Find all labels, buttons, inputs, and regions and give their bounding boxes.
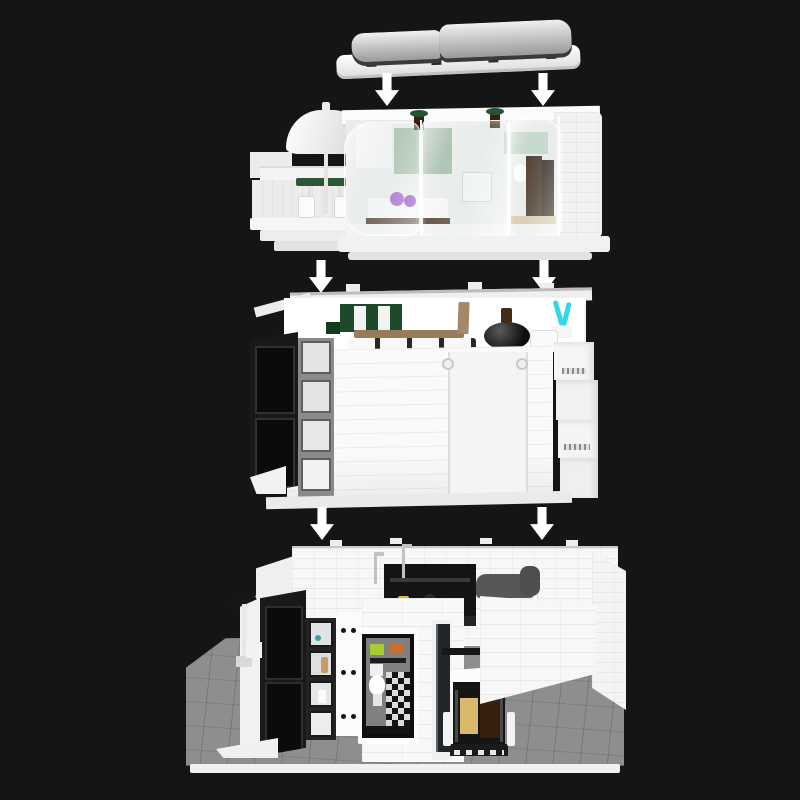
chrome-tap: [402, 548, 405, 578]
middle-recessed-panel: [448, 352, 528, 496]
window-column-gray: [298, 338, 334, 498]
toilet-bowl: [369, 675, 385, 695]
stepped-side-wall: [554, 342, 600, 498]
wardrobe-gold-door: [460, 698, 478, 734]
bathroom-floor-edge: [366, 726, 410, 734]
bathroom-interior: [366, 638, 410, 734]
chrome-tap: [374, 556, 377, 584]
cyan-plant-leaf: [561, 302, 572, 326]
rim-tab: [330, 540, 342, 546]
towel-lime: [370, 644, 384, 655]
roof-slab-left: [351, 30, 444, 63]
glass-panel-right: [510, 118, 562, 238]
display-item-figure: [321, 657, 328, 673]
bathroom-shelf: [370, 658, 406, 663]
display-cell: [309, 681, 333, 707]
checker-floor: [386, 672, 410, 728]
display-cell: [309, 711, 333, 737]
side-step: [556, 380, 598, 420]
ground-right-wall: [592, 552, 626, 710]
small-window: [301, 419, 331, 452]
small-window: [301, 458, 331, 491]
white-fixture: [246, 642, 262, 658]
towel-arm-black: [442, 648, 480, 655]
upper-floor-slab-lip: [348, 252, 592, 260]
chrome-tap-arm: [402, 544, 412, 548]
pillar-bolt: [341, 670, 346, 675]
pin-stud: [442, 358, 454, 370]
small-window: [301, 341, 331, 374]
pillar-bolt: [351, 628, 356, 633]
glass-mullion: [558, 116, 560, 236]
roof-clip-slot: [366, 63, 376, 67]
wardrobe-post: [443, 712, 451, 746]
wood-plank: [457, 302, 469, 334]
pillar-bolt: [341, 714, 346, 719]
kitchen-unit-green-low: [326, 322, 340, 334]
parasol-pole: [324, 152, 328, 214]
pin-stud: [516, 358, 528, 370]
ground-floor-section: [180, 540, 630, 792]
corner-window-pane: [265, 606, 303, 680]
planter-foliage: [410, 110, 428, 117]
wardrobe-base: [450, 744, 508, 756]
display-item-teal: [315, 635, 321, 641]
pillar-bolt: [341, 628, 346, 633]
display-cell: [309, 621, 333, 647]
roof-clip-slot: [546, 55, 556, 59]
small-window: [301, 380, 331, 413]
chrome-tap-arm: [374, 552, 384, 556]
glass-panel-curved-left: [344, 122, 420, 236]
cabinet-gap: [378, 306, 390, 330]
printed-sticker: [564, 444, 590, 450]
glass-bedroom: [340, 104, 606, 254]
middle-floor-section: [250, 288, 598, 514]
kitchen-shelf: [390, 578, 470, 582]
terrace-chair: [298, 196, 315, 218]
corner-window-pane: [255, 346, 295, 414]
display-shelf-column: [306, 618, 336, 740]
side-step: [558, 420, 598, 458]
roof-clip-slot: [488, 58, 498, 62]
roof-clip-slot: [431, 61, 441, 65]
wardrobe-side-strip: [455, 690, 458, 742]
display-item-white: [318, 690, 326, 703]
toilet-pedestal: [373, 694, 382, 706]
wardrobe-post: [507, 712, 515, 746]
upper-floor-slab: [338, 236, 610, 252]
rim-tab: [566, 540, 578, 546]
product-image: [0, 0, 800, 800]
pillar-bolt: [351, 714, 356, 719]
corner-window-black: [260, 590, 306, 756]
printed-sticker: [562, 368, 586, 374]
upper-floor-section: [250, 104, 606, 264]
glass-mullion: [420, 120, 422, 236]
rim-tab: [480, 538, 492, 544]
towel-orange: [390, 643, 403, 654]
glass-mullion: [508, 118, 510, 236]
planter-foliage: [486, 108, 504, 115]
display-cell: [309, 651, 333, 677]
bar-counter: [354, 330, 464, 338]
curved-sofa-end: [520, 566, 540, 596]
cabinet-gap: [354, 306, 366, 330]
roof-slab-right: [439, 19, 572, 59]
baseplate-front-trim: [190, 764, 620, 773]
rim-tab: [390, 538, 402, 544]
kitchen-cabinets-green: [340, 304, 402, 332]
dome-flue-brown: [501, 308, 512, 323]
corner-window-black: [250, 332, 298, 494]
side-step: [554, 342, 594, 380]
pillar-bolt: [351, 670, 356, 675]
glass-panel-center: [422, 120, 508, 238]
